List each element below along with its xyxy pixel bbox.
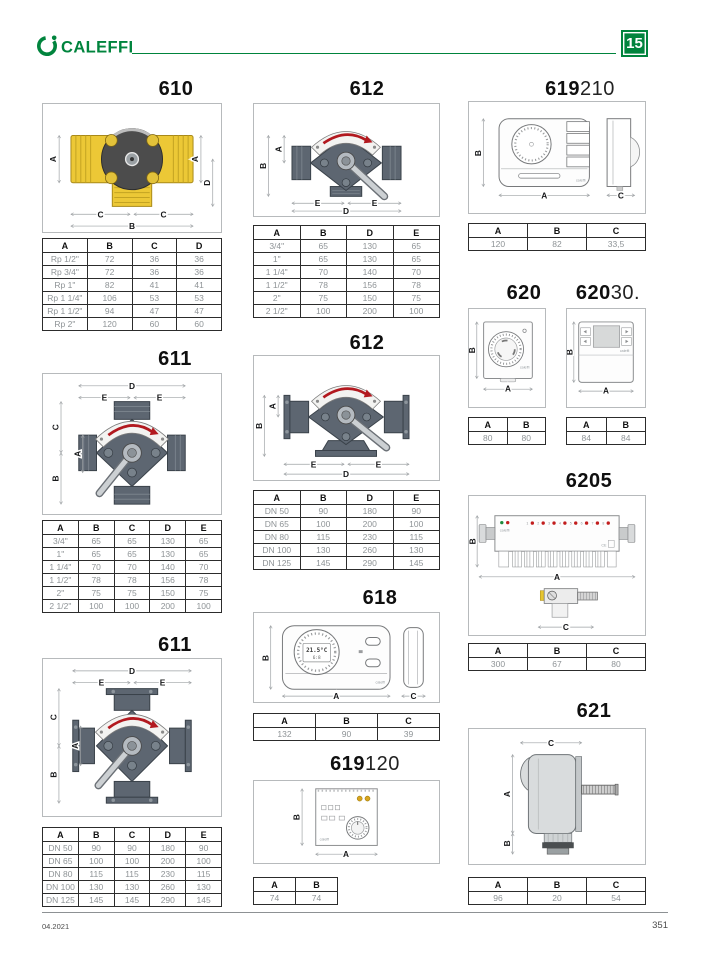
column-header: A xyxy=(254,226,301,240)
column-header: D xyxy=(347,226,394,240)
table-cell: 74 xyxy=(254,892,296,905)
figure-620: caleffi B A xyxy=(468,308,546,408)
device-brand-mark: caleffi xyxy=(520,366,530,370)
dim-label: C xyxy=(563,622,569,632)
vent-slat xyxy=(567,122,590,132)
table-cell: 100 xyxy=(300,305,347,318)
product-code: 611 xyxy=(158,634,192,656)
figure-619120-diagram: caleffi B A xyxy=(254,781,439,863)
product-code-suffix: 30. xyxy=(611,282,640,304)
table-row: DN 125145145290145 xyxy=(43,894,222,907)
table-row: 1 1/2"787815678 xyxy=(43,574,222,587)
table-row: 1329039 xyxy=(254,728,440,741)
product-code: 6205 xyxy=(566,470,613,492)
table-cell: 90 xyxy=(300,505,347,518)
table-cell: 78 xyxy=(78,574,114,587)
table-cell: 78 xyxy=(393,279,440,292)
product-code: 619 xyxy=(330,753,365,775)
table-cell: 130 xyxy=(347,240,394,253)
table-row: 7474 xyxy=(254,892,338,905)
table-cell: Rp 2" xyxy=(43,318,88,331)
table-row: 1208233,5 xyxy=(469,238,646,251)
table-cell: 130 xyxy=(78,881,114,894)
table-cell: 115 xyxy=(186,868,222,881)
column-header: A xyxy=(254,878,296,892)
table-cell: 84 xyxy=(606,432,646,445)
table-cell: 90 xyxy=(393,505,440,518)
product-title-6205: 6205 xyxy=(566,471,613,491)
dim-label: E xyxy=(376,459,382,469)
table-cell: 230 xyxy=(150,868,186,881)
dim-label: D xyxy=(129,381,135,391)
dim-label: E xyxy=(311,459,317,469)
table-row: DN 125145290145 xyxy=(254,557,440,570)
table-row: DN 80115115230115 xyxy=(43,868,222,881)
table-row: 962054 xyxy=(469,892,646,905)
column-header: C xyxy=(114,828,150,842)
figure-610: A A D C C B xyxy=(42,103,222,233)
dim-label: B xyxy=(473,150,483,156)
figure-619210-diagram: caleffi B A C xyxy=(469,102,645,213)
dim-label: D xyxy=(202,180,212,186)
figure-618: 21.5°C 6:8 caleffi B A C xyxy=(253,612,440,703)
valve-body-flanged xyxy=(284,386,409,457)
product-title-619120: 619120 xyxy=(330,754,400,774)
dim-label: A xyxy=(268,403,278,409)
product-title-621: 621 xyxy=(577,701,612,721)
dim-label: B xyxy=(567,349,575,355)
table-row: Rp 1/2"723636 xyxy=(43,253,222,266)
table-cell: 150 xyxy=(347,292,394,305)
dim-label: C xyxy=(97,209,103,219)
product-title-62030: 62030. xyxy=(576,283,640,303)
figure-62030-diagram: caleffi B A xyxy=(567,309,645,407)
table-cell: 130 xyxy=(150,535,186,548)
table-cell: 100 xyxy=(300,518,347,531)
column-header: A xyxy=(469,644,528,658)
table-cell: 65 xyxy=(300,253,347,266)
vent-slat xyxy=(567,145,590,155)
table-cell: 75 xyxy=(186,587,222,600)
table-row: Rp 1 1/4"1065353 xyxy=(43,292,222,305)
column-header: B xyxy=(528,224,587,238)
table-cell: 1" xyxy=(254,253,301,266)
column-header: B xyxy=(296,878,338,892)
table-cell: 82 xyxy=(87,279,132,292)
product-code: 620 xyxy=(507,282,542,304)
table-cell: 90 xyxy=(78,842,114,855)
table-cell: DN 80 xyxy=(254,531,301,544)
table-row: DN 100130130260130 xyxy=(43,881,222,894)
dim-label: B xyxy=(469,538,478,544)
table-cell: 78 xyxy=(114,574,150,587)
valve-body-gray xyxy=(292,132,401,197)
table-cell: 156 xyxy=(347,279,394,292)
column-header: E xyxy=(186,521,222,535)
led-number: 1 xyxy=(526,522,528,526)
valve-body-gray xyxy=(79,402,185,505)
table-row: 2"7515075 xyxy=(254,292,440,305)
table-cell: 1 1/4" xyxy=(254,266,301,279)
table-cell: 72 xyxy=(87,266,132,279)
table-cell: 65 xyxy=(300,240,347,253)
slot xyxy=(519,174,560,178)
figure-6205: 1 2 3 4 5 6 7 8 caleffi CE xyxy=(468,495,646,636)
caleffi-logo: CALEFFI xyxy=(36,32,136,63)
table-cell: 145 xyxy=(114,894,150,907)
thermostat-front: caleffi xyxy=(579,322,634,382)
product-title-619210: 619210 xyxy=(545,79,615,99)
table-cell: 156 xyxy=(150,574,186,587)
brand-wordmark: CALEFFI xyxy=(61,39,133,57)
dim-label: C xyxy=(49,714,59,720)
table-row: 1 1/4"7014070 xyxy=(254,266,440,279)
table-cell: 200 xyxy=(150,855,186,868)
table-cell: 65 xyxy=(393,253,440,266)
button xyxy=(366,637,381,645)
dim-label: E xyxy=(157,393,163,403)
table-cell: 70 xyxy=(78,561,114,574)
product-code: 621 xyxy=(577,700,612,722)
table-cell: 60 xyxy=(132,318,177,331)
table-cell: 54 xyxy=(587,892,646,905)
table-cell: 74 xyxy=(296,892,338,905)
column-header: E xyxy=(393,491,440,505)
section-badge: 15 xyxy=(621,30,648,57)
dim-label: A xyxy=(70,743,80,749)
column-header: C xyxy=(587,644,646,658)
table-cell: 180 xyxy=(347,505,394,518)
table-cell: 130 xyxy=(300,544,347,557)
product-code: 611 xyxy=(158,348,192,370)
table-cell: 36 xyxy=(177,253,222,266)
thermostat-side xyxy=(607,119,640,191)
dim-label: D xyxy=(129,666,135,676)
dimension-table-620: AB8080 xyxy=(468,417,546,445)
edition-date: 04.2021 xyxy=(42,922,69,931)
figure-612a-diagram: A B E E D xyxy=(254,104,439,216)
table-cell: Rp 1 1/4" xyxy=(43,292,88,305)
column-header: A xyxy=(469,418,508,432)
device-brand-mark: caleffi xyxy=(376,680,386,684)
thermostat-front: caleffi xyxy=(484,322,533,382)
table-cell: 47 xyxy=(177,305,222,318)
product-code: 612 xyxy=(350,78,385,100)
table-cell: 100 xyxy=(78,855,114,868)
dim-label: C xyxy=(410,691,416,701)
product-code: 619 xyxy=(545,78,580,100)
table-cell: DN 80 xyxy=(43,868,79,881)
table-cell: 2" xyxy=(254,292,301,305)
dim-label: C xyxy=(51,424,61,430)
dim-label: E xyxy=(99,678,105,688)
dim-label: D xyxy=(343,469,349,479)
table-cell: 1 1/2" xyxy=(254,279,301,292)
table-cell: 115 xyxy=(114,868,150,881)
dimension-table-621: ABC962054 xyxy=(468,877,646,905)
table-cell: 130 xyxy=(114,881,150,894)
indicator-led xyxy=(365,796,370,801)
dim-label: B xyxy=(502,840,512,846)
figure-611a: D E E C A B xyxy=(42,373,222,515)
table-cell: 94 xyxy=(87,305,132,318)
table-cell: 260 xyxy=(150,881,186,894)
dimension-table-619210: ABC1208233,5 xyxy=(468,223,646,251)
table-cell: 106 xyxy=(87,292,132,305)
table-cell: 65 xyxy=(393,240,440,253)
table-row: 1 1/2"7815678 xyxy=(254,279,440,292)
thermostat-front: caleffi xyxy=(499,119,589,187)
table-cell: 200 xyxy=(347,518,394,531)
product-code: 610 xyxy=(159,78,194,100)
table-cell: 36 xyxy=(132,266,177,279)
product-title-612a: 612 xyxy=(350,79,385,99)
table-cell: 82 xyxy=(528,238,587,251)
dimension-table-611a: ABCDE3/4"6565130651"6565130651 1/4"70701… xyxy=(42,520,222,613)
column-header: A xyxy=(43,828,79,842)
thermostat-front: 21.5°C 6:8 caleffi xyxy=(282,626,390,690)
thermostat-side xyxy=(404,628,424,688)
led-number: 3 xyxy=(548,522,550,526)
table-cell: 230 xyxy=(347,531,394,544)
product-title-611a: 611 xyxy=(158,349,192,369)
table-cell: 1" xyxy=(43,548,79,561)
table-cell: 100 xyxy=(114,855,150,868)
product-code-suffix: 210 xyxy=(580,78,615,100)
column-header: A xyxy=(43,239,88,253)
vent-slat xyxy=(567,157,590,167)
table-row: 3006780 xyxy=(469,658,646,671)
dim-label: E xyxy=(160,678,166,688)
table-cell: 2 1/2" xyxy=(43,600,79,613)
product-code-suffix: 120 xyxy=(365,753,400,775)
led-number: 5 xyxy=(570,522,572,526)
device-brand-mark: caleffi xyxy=(620,349,630,353)
table-cell: 65 xyxy=(186,535,222,548)
column-header: E xyxy=(393,226,440,240)
table-cell: 65 xyxy=(78,548,114,561)
table-cell: 100 xyxy=(393,305,440,318)
table-cell: 80 xyxy=(469,432,508,445)
column-header: D xyxy=(150,828,186,842)
table-cell: 115 xyxy=(393,531,440,544)
column-header: B xyxy=(78,521,114,535)
thermostat-front: caleffi xyxy=(316,789,378,846)
dim-label: A xyxy=(333,691,339,701)
led-number: 6 xyxy=(581,522,583,526)
figure-621: C A B xyxy=(468,728,646,865)
table-row: 1 1/4"707014070 xyxy=(43,561,222,574)
power-led xyxy=(500,521,503,524)
vent-slat xyxy=(567,133,590,143)
table-cell: 140 xyxy=(150,561,186,574)
dim-label: B xyxy=(469,347,477,353)
column-header: A xyxy=(254,714,316,728)
column-header: A xyxy=(43,521,79,535)
dimension-table-62030: AB8484 xyxy=(566,417,646,445)
table-cell: 3/4" xyxy=(43,535,79,548)
column-header: C xyxy=(114,521,150,535)
figure-612a: A B E E D xyxy=(253,103,440,217)
table-cell: 290 xyxy=(150,894,186,907)
column-header: B xyxy=(606,418,646,432)
dim-label: E xyxy=(372,198,378,208)
table-row: Rp 1 1/2"944747 xyxy=(43,305,222,318)
table-cell: 70 xyxy=(186,561,222,574)
table-cell: 260 xyxy=(347,544,394,557)
column-header: B xyxy=(507,418,546,432)
table-row: DN 509018090 xyxy=(254,505,440,518)
table-row: Rp 3/4"723636 xyxy=(43,266,222,279)
page-number: 351 xyxy=(652,920,668,931)
table-cell: 150 xyxy=(150,587,186,600)
table-cell: 200 xyxy=(347,305,394,318)
table-cell: DN 65 xyxy=(254,518,301,531)
dim-label: B xyxy=(292,814,302,820)
column-header: B xyxy=(300,491,347,505)
table-cell: 115 xyxy=(300,531,347,544)
dim-label: B xyxy=(260,655,270,661)
table-row: 2 1/2"100100200100 xyxy=(43,600,222,613)
column-header: B xyxy=(87,239,132,253)
table-cell: 140 xyxy=(347,266,394,279)
dimension-table-618: ABC1329039 xyxy=(253,713,440,741)
table-row: 3/4"656513065 xyxy=(43,535,222,548)
table-cell: 96 xyxy=(469,892,528,905)
dimension-table-610: ABCDRp 1/2"723636Rp 3/4"723636Rp 1"82414… xyxy=(42,238,222,331)
lcd-temp: 21.5°C xyxy=(306,648,328,654)
dim-label: A xyxy=(554,572,560,582)
table-cell: 20 xyxy=(528,892,587,905)
table-cell: 290 xyxy=(347,557,394,570)
table-cell: 130 xyxy=(186,881,222,894)
figure-618-diagram: 21.5°C 6:8 caleffi B A C xyxy=(254,613,439,702)
table-cell: 1 1/2" xyxy=(43,574,79,587)
dim-label: A xyxy=(603,387,609,396)
dim-label: A xyxy=(541,190,547,200)
lcd-display xyxy=(593,326,619,347)
table-row: Rp 1"824141 xyxy=(43,279,222,292)
table-cell: DN 100 xyxy=(254,544,301,557)
table-cell: 300 xyxy=(469,658,528,671)
table-cell: DN 100 xyxy=(43,881,79,894)
table-row: DN 65100200100 xyxy=(254,518,440,531)
table-row: DN 65100100200100 xyxy=(43,855,222,868)
table-row: Rp 2"1206060 xyxy=(43,318,222,331)
table-row: 2"757515075 xyxy=(43,587,222,600)
figure-619210: caleffi B A C xyxy=(468,101,646,214)
figure-612b-diagram: A B E E D xyxy=(254,356,439,480)
dim-label: A xyxy=(48,156,58,162)
lcd-time: 6:8 xyxy=(313,655,321,661)
figure-619120: caleffi B A xyxy=(253,780,440,864)
terminal-blocks xyxy=(499,551,616,567)
product-title-612b: 612 xyxy=(350,333,385,353)
table-row: 1"656513065 xyxy=(43,548,222,561)
column-header: B xyxy=(528,644,587,658)
led-number: 4 xyxy=(559,522,561,526)
table-cell: 41 xyxy=(177,279,222,292)
column-header: A xyxy=(469,224,528,238)
dim-label: A xyxy=(505,385,511,394)
figure-611b: D E E C A B xyxy=(42,658,222,817)
dim-label: C xyxy=(160,209,166,219)
dim-label: C xyxy=(618,190,624,200)
table-cell: 41 xyxy=(132,279,177,292)
table-cell: 72 xyxy=(87,253,132,266)
table-cell: 78 xyxy=(300,279,347,292)
figure-620-diagram: caleffi B A xyxy=(469,309,545,407)
table-cell: 90 xyxy=(114,842,150,855)
product-title-610: 610 xyxy=(159,79,194,99)
figure-6205-diagram: 1 2 3 4 5 6 7 8 caleffi CE xyxy=(469,496,645,635)
column-header: B xyxy=(300,226,347,240)
table-cell: 130 xyxy=(150,548,186,561)
table-row: 1"6513065 xyxy=(254,253,440,266)
status-led xyxy=(506,521,509,524)
table-cell: 53 xyxy=(177,292,222,305)
table-cell: 80 xyxy=(507,432,546,445)
table-cell: 100 xyxy=(393,518,440,531)
table-cell: DN 50 xyxy=(43,842,79,855)
led-number: 2 xyxy=(537,522,539,526)
valve-body-brass xyxy=(71,129,193,207)
table-cell: 70 xyxy=(114,561,150,574)
caleffi-logo-graphic: CALEFFI xyxy=(36,32,136,58)
catalog-page: CALEFFI 15 610 612 619210 620 62030. 612… xyxy=(0,0,710,958)
dimension-table-619120: AB7474 xyxy=(253,877,338,905)
led-number: 7 xyxy=(592,522,594,526)
table-cell: 65 xyxy=(114,548,150,561)
column-header: A xyxy=(567,418,607,432)
table-row: 8484 xyxy=(567,432,646,445)
dimension-table-6205: ABC3006780 xyxy=(468,643,646,671)
column-header: C xyxy=(132,239,177,253)
table-cell: 47 xyxy=(132,305,177,318)
table-cell: 145 xyxy=(78,894,114,907)
table-cell: 120 xyxy=(469,238,528,251)
dim-label: B xyxy=(258,163,268,169)
table-cell: Rp 1" xyxy=(43,279,88,292)
table-cell: Rp 3/4" xyxy=(43,266,88,279)
table-cell: 3/4" xyxy=(254,240,301,253)
table-cell: 75 xyxy=(300,292,347,305)
table-cell: 33,5 xyxy=(587,238,646,251)
table-cell: 2 1/2" xyxy=(254,305,301,318)
table-cell: 65 xyxy=(114,535,150,548)
logo-dot-icon xyxy=(52,36,57,41)
table-cell: 130 xyxy=(393,544,440,557)
header-rule xyxy=(132,53,616,54)
figure-610-diagram: A A D C C B xyxy=(43,104,221,232)
table-cell: 67 xyxy=(528,658,587,671)
table-cell: 1 1/4" xyxy=(43,561,79,574)
table-cell: 75 xyxy=(78,587,114,600)
figure-62030: caleffi B A xyxy=(566,308,646,408)
column-header: D xyxy=(347,491,394,505)
table-cell: Rp 1 1/2" xyxy=(43,305,88,318)
dim-label: E xyxy=(102,393,108,403)
table-row: DN 100130260130 xyxy=(254,544,440,557)
column-header: B xyxy=(528,878,587,892)
table-cell: 53 xyxy=(132,292,177,305)
button xyxy=(366,659,381,667)
table-cell: 180 xyxy=(150,842,186,855)
relay-strip-side-view xyxy=(540,589,597,618)
column-header: B xyxy=(316,714,378,728)
table-cell: 100 xyxy=(114,600,150,613)
dim-label: A xyxy=(72,451,82,457)
